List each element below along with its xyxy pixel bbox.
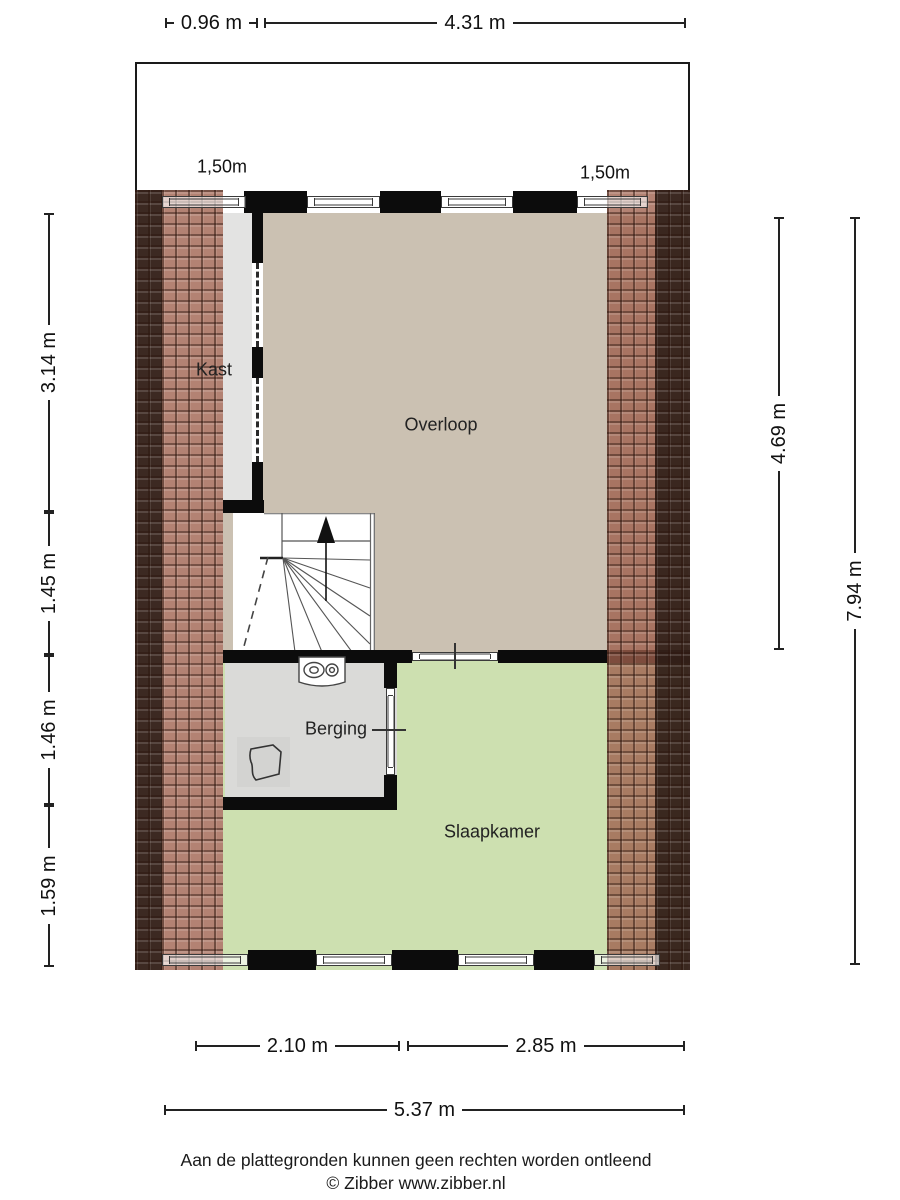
dim-line bbox=[166, 1109, 387, 1111]
dim-line bbox=[249, 22, 256, 24]
dim-label: 2.10 m bbox=[260, 1035, 335, 1058]
wall-segment bbox=[384, 650, 397, 688]
dim-bottom-2: 5.37 m bbox=[164, 1100, 685, 1120]
window bbox=[458, 954, 534, 966]
dim-line bbox=[48, 768, 50, 803]
wall-segment bbox=[513, 191, 577, 213]
dim-line bbox=[167, 22, 174, 24]
dim-label: 4.31 m bbox=[437, 12, 512, 35]
wall-segment bbox=[380, 191, 441, 213]
dim-line bbox=[48, 924, 50, 965]
dim-top-outer-left: 0.96 m bbox=[165, 13, 258, 33]
room-label-slaapkamer: Slaapkamer bbox=[444, 822, 540, 843]
dim-line bbox=[513, 22, 684, 24]
boiler-icon bbox=[298, 656, 346, 690]
dim-bottom-1: 2.85 m bbox=[407, 1036, 685, 1056]
dim-line bbox=[778, 219, 780, 396]
dim-line bbox=[266, 22, 437, 24]
dim-label: 1.46 m bbox=[38, 692, 61, 767]
dim-label: 3.14 m bbox=[38, 325, 61, 400]
dim-top-outer-right: 4.31 m bbox=[264, 13, 686, 33]
room-label-kast: Kast bbox=[196, 360, 232, 381]
knee-wall bbox=[252, 213, 263, 500]
dim-line bbox=[48, 215, 50, 325]
window bbox=[594, 954, 660, 966]
dim-left-1: 1.45 m bbox=[39, 512, 59, 655]
dim-label: 7.94 m bbox=[844, 553, 867, 628]
dim-line bbox=[197, 1045, 260, 1047]
dim-right-1: 7.94 m bbox=[845, 217, 865, 965]
window bbox=[441, 196, 513, 208]
window bbox=[162, 196, 246, 208]
dim-line bbox=[854, 219, 856, 553]
dim-right-0: 4.69 m bbox=[769, 217, 789, 650]
staircase bbox=[233, 513, 375, 652]
berging-door-window bbox=[386, 688, 395, 775]
sink-icon bbox=[237, 737, 290, 787]
dim-line bbox=[48, 621, 50, 653]
dim-label: 2.85 m bbox=[508, 1035, 583, 1058]
roof-tiles-left-inner bbox=[162, 190, 223, 970]
wall-segment bbox=[534, 950, 594, 970]
clearance-label-right: 1,50m bbox=[580, 163, 630, 184]
wall-segment bbox=[248, 950, 316, 970]
room-kast-floor bbox=[223, 213, 252, 500]
window bbox=[162, 954, 248, 966]
dim-line bbox=[48, 514, 50, 546]
dim-line bbox=[48, 657, 50, 692]
roof-tiles-right-inner bbox=[607, 190, 655, 970]
wall-segment bbox=[252, 462, 263, 500]
room-label-overloop: Overloop bbox=[404, 415, 477, 436]
dim-left-3: 1.59 m bbox=[39, 805, 59, 967]
copyright-text: © Zibber www.zibber.nl bbox=[326, 1173, 505, 1194]
dashed-wall-segment bbox=[256, 378, 259, 462]
window bbox=[307, 196, 380, 208]
window-tick bbox=[372, 729, 406, 731]
dim-left-2: 1.46 m bbox=[39, 655, 59, 805]
dim-label: 4.69 m bbox=[768, 396, 791, 471]
wall-segment bbox=[252, 213, 263, 263]
dim-line bbox=[462, 1109, 683, 1111]
dim-label: 0.96 m bbox=[174, 12, 249, 35]
dim-line bbox=[584, 1045, 683, 1047]
dim-line bbox=[778, 471, 780, 648]
room-label-berging: Berging bbox=[305, 719, 367, 740]
dim-line bbox=[48, 400, 50, 510]
disclaimer-text: Aan de plattegronden kunnen geen rechten… bbox=[181, 1150, 652, 1171]
dim-line bbox=[335, 1045, 398, 1047]
clearance-label-left: 1,50m bbox=[197, 157, 247, 178]
dim-line bbox=[854, 629, 856, 963]
wall-segment bbox=[252, 347, 263, 378]
roof-tiles-left-outer bbox=[135, 190, 162, 970]
floorplan-page: 0.96 m 4.31 m 4.15 m 1,50m 1,50m bbox=[0, 0, 900, 1200]
dim-label: 1.59 m bbox=[38, 848, 61, 923]
wall-segment bbox=[223, 500, 264, 513]
dim-line bbox=[48, 807, 50, 848]
roof-tiles-right-outer bbox=[655, 190, 690, 970]
dim-label: 5.37 m bbox=[387, 1099, 462, 1122]
wall-segment bbox=[244, 191, 307, 213]
dim-left-0: 3.14 m bbox=[39, 213, 59, 512]
wall-segment bbox=[392, 950, 458, 970]
wall-segment bbox=[223, 797, 397, 810]
dim-line bbox=[409, 1045, 508, 1047]
window-tick bbox=[454, 643, 456, 669]
dashed-wall-segment bbox=[256, 263, 259, 347]
dim-bottom-0: 2.10 m bbox=[195, 1036, 400, 1056]
window bbox=[577, 196, 648, 208]
dim-label: 1.45 m bbox=[38, 546, 61, 621]
window bbox=[316, 954, 392, 966]
